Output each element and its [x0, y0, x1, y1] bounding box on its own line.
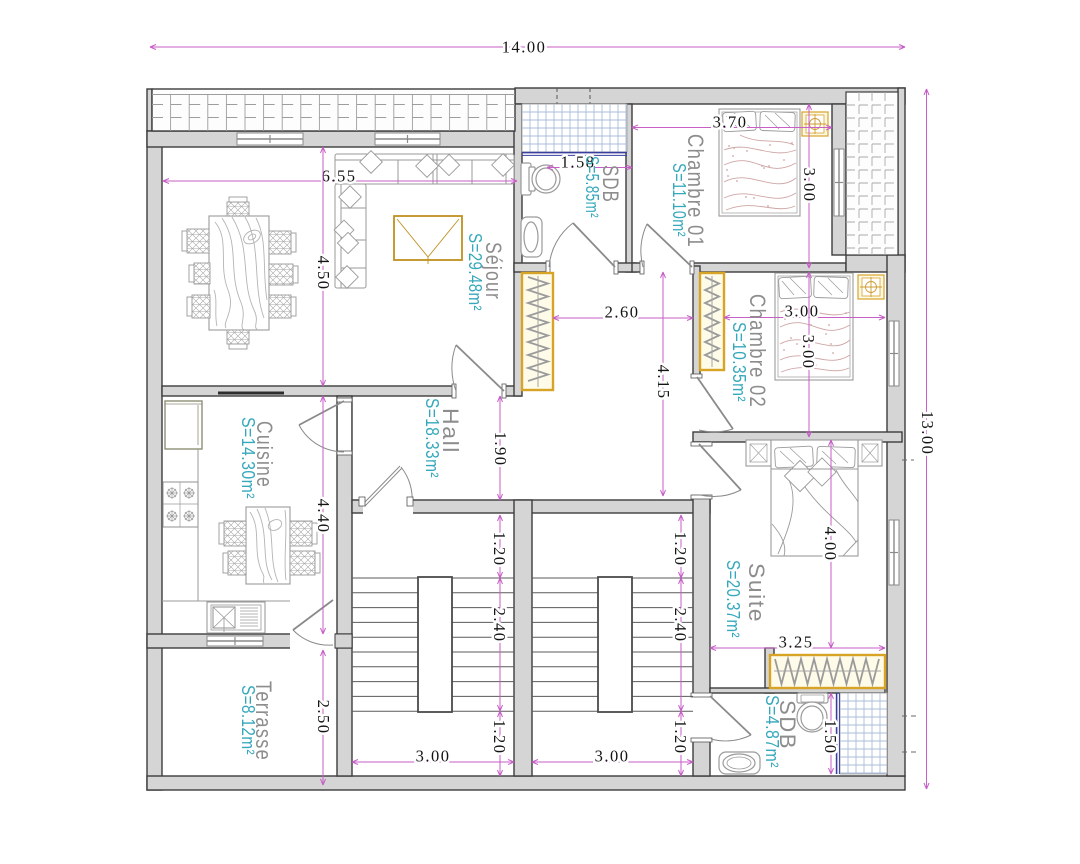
svg-text:6.55: 6.55	[322, 167, 357, 186]
svg-text:14.00: 14.00	[502, 38, 547, 57]
svg-text:S=18.33m²: S=18.33m²	[422, 398, 442, 478]
svg-text:S=11.10m²: S=11.10m²	[669, 163, 689, 237]
svg-text:4.00: 4.00	[821, 527, 840, 562]
svg-text:2.40: 2.40	[671, 608, 690, 643]
svg-text:4.15: 4.15	[654, 365, 673, 400]
svg-text:3.70: 3.70	[713, 113, 748, 132]
svg-text:3.00: 3.00	[595, 747, 630, 766]
svg-text:3.00: 3.00	[785, 302, 820, 321]
svg-text:1.20: 1.20	[490, 720, 509, 755]
svg-text:S=29.48m²: S=29.48m²	[465, 233, 485, 311]
svg-text:2.40: 2.40	[490, 608, 509, 643]
svg-text:S=8.12m²: S=8.12m²	[238, 685, 258, 755]
svg-text:3.00: 3.00	[800, 168, 819, 203]
svg-text:1.90: 1.90	[491, 432, 510, 467]
svg-text:S=4.87m²: S=4.87m²	[762, 695, 782, 768]
svg-text:2.50: 2.50	[314, 700, 333, 735]
svg-text:13.00: 13.00	[918, 411, 937, 456]
svg-text:3.25: 3.25	[779, 633, 814, 652]
svg-text:S=14.30m²: S=14.30m²	[238, 417, 258, 499]
svg-text:1.20: 1.20	[671, 532, 690, 567]
svg-text:4.40: 4.40	[314, 499, 333, 534]
svg-text:S=10.35m²: S=10.35m²	[729, 322, 749, 402]
svg-text:S=20.37m²: S=20.37m²	[723, 560, 743, 638]
svg-text:1.20: 1.20	[490, 532, 509, 567]
svg-text:1.20: 1.20	[671, 720, 690, 755]
svg-text:4.50: 4.50	[314, 256, 333, 291]
svg-text:1.50: 1.50	[821, 720, 840, 755]
svg-text:2.60: 2.60	[605, 303, 640, 322]
svg-text:3.00: 3.00	[416, 747, 451, 766]
svg-text:S=5.85m²: S=5.85m²	[582, 156, 602, 218]
svg-text:Suite: Suite	[744, 563, 769, 623]
svg-text:3.00: 3.00	[799, 335, 818, 370]
